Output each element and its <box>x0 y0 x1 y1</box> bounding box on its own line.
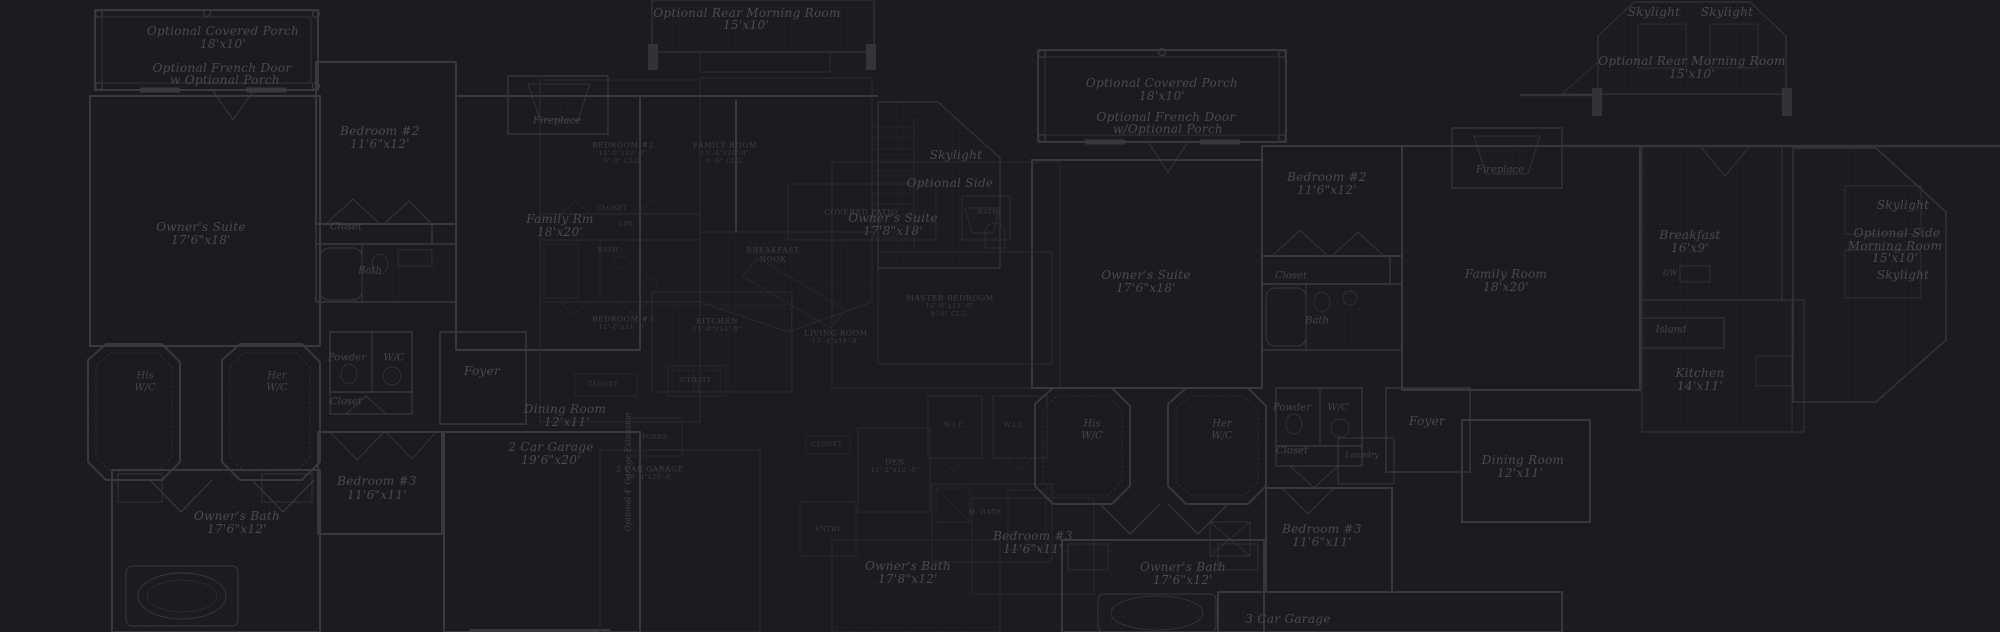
room-label: 12'x11' <box>544 415 590 429</box>
room-label: W/C <box>1081 431 1102 442</box>
label-bedroom-3: Bedroom #3 <box>337 474 417 488</box>
room-label: 15'x10' <box>723 18 769 32</box>
room-label: NOOK <box>760 255 787 264</box>
room-label: CLOSET <box>596 204 627 212</box>
room-label: 17'8"x18' <box>863 224 923 238</box>
room-label: Bath <box>1305 316 1329 327</box>
room-label: Optional Rear Morning Room <box>1598 54 1785 68</box>
room-label: 9'-0" CLG. <box>931 310 970 318</box>
room-label: Owner's Suite <box>848 211 938 225</box>
room-label: 15'x10' <box>1669 67 1715 81</box>
room-label: Her <box>1212 419 1231 430</box>
label-optional-covered-porch: Optional Covered Porch <box>147 24 299 38</box>
room-label: MASTER BEDROOM <box>906 294 994 303</box>
room-label: DW <box>1663 269 1678 278</box>
room-label: 9'-0" CLG. <box>604 157 643 165</box>
room-label: Closet <box>1275 271 1307 282</box>
room-label: KITCHEN <box>696 317 738 326</box>
room-label: Powder <box>1273 403 1311 414</box>
room-label: w/Optional Porch <box>1113 122 1223 136</box>
label-owners-suite: Owner's Suite <box>156 220 246 234</box>
room-label: 17'6"x12' <box>207 522 267 536</box>
room-label: BREAKFAST <box>746 246 799 255</box>
room-label: Powder <box>328 353 366 364</box>
room-label: 11'6"x12' <box>1297 183 1357 197</box>
room-label: Skylight <box>1628 5 1681 19</box>
room-label: 2 CAR GARAGE <box>616 465 683 474</box>
room-label: 11'6"x12' <box>350 137 410 151</box>
label-garage-extension: Optional 4' Garage Extension <box>624 412 633 531</box>
room-label: 19'6"x20' <box>521 453 581 467</box>
room-label: CLOSET <box>811 440 842 448</box>
room-label: w Optional Porch <box>170 73 280 87</box>
room-label: 16'-0"x13'-0" <box>926 302 975 310</box>
room-label: W/C <box>1211 431 1232 442</box>
room-label: His <box>136 371 153 382</box>
room-label: Foyer <box>1409 414 1445 428</box>
room-label: 11'-0"x11'-0" <box>599 323 648 331</box>
room-label: 17'8"x12' <box>878 572 938 586</box>
room-label: Closet <box>330 222 362 233</box>
room-label: Owner's Bath <box>865 559 951 573</box>
room-label: 17'6"x18' <box>171 233 231 247</box>
label-laundry: Laundry <box>1345 451 1379 460</box>
label-breakfast: Breakfast <box>1659 228 1720 242</box>
room-label: 11'-2"x12'-0" <box>871 466 920 474</box>
room-label: Optional Covered Porch <box>1086 76 1238 90</box>
room-label: 12'x11' <box>1497 466 1543 480</box>
room-label: 11'6"x11' <box>347 488 407 502</box>
room-label: Optional French Door <box>1097 110 1236 124</box>
room-label: 18'x20' <box>1483 280 1529 294</box>
room-label: LIVING ROOM <box>804 329 867 338</box>
room-label: Fireplace <box>1476 165 1524 176</box>
room-label: 11'-0"x12'-0" <box>599 149 648 157</box>
label-rear-morning-room: Optional Rear Morning Room <box>653 6 840 20</box>
room-label: 17'6"x18' <box>1116 281 1176 295</box>
room-label: His <box>1083 419 1100 430</box>
room-label: W/C <box>383 353 404 364</box>
label-family-rm: Family Rm <box>526 212 593 226</box>
label-skylight: Skylight <box>930 148 983 162</box>
room-label: Her <box>267 371 286 382</box>
room-label: FAMILY ROOM <box>693 141 758 150</box>
room-label: Bedroom #3 <box>993 529 1073 543</box>
room-label: Owner's Bath <box>1140 560 1226 574</box>
room-label: CLOSET <box>587 380 618 388</box>
room-label: BATH <box>977 208 998 216</box>
room-label: M. BATH <box>968 508 1001 516</box>
room-label: 9'-0" CLG. <box>706 157 745 165</box>
label-owners-bath: Owner's Bath <box>194 509 280 523</box>
room-label: W/C <box>266 383 287 394</box>
label-foyer: Foyer <box>464 364 500 378</box>
room-label: 11'6"x11' <box>1003 542 1063 556</box>
room-label: 15'x10' <box>1872 251 1918 265</box>
blueprint-collage: Optional Covered Porch18'x10'Optional Fr… <box>0 0 2000 632</box>
room-label: 11'-0"x14'-0" <box>693 325 742 333</box>
room-label: 14'x11' <box>1677 379 1723 393</box>
room-label: COVERED PATIO <box>824 208 897 217</box>
room-label: DEN <box>885 458 905 467</box>
label-optional-french-door: Optional French Door <box>153 61 292 75</box>
room-label: 17'6"x12' <box>1153 573 1213 587</box>
room-label: Skylight <box>1701 5 1754 19</box>
room-label: BEDROOM #3 <box>592 315 654 324</box>
room-label: Optional Side <box>907 176 994 190</box>
room-label: ENTRY <box>815 525 841 533</box>
room-label: BEDROOM #2 <box>592 141 654 150</box>
label-dining-room: Dining Room <box>1482 453 1564 467</box>
labels-layer: Optional Covered Porch18'x10'Optional Fr… <box>0 0 2000 632</box>
room-label: 18'x20' <box>537 225 583 239</box>
room-label: Bedroom #3 <box>1282 522 1362 536</box>
room-label: W.I.C. <box>1004 421 1026 429</box>
room-label: W/C <box>134 383 155 394</box>
room-label: W.I.C. <box>944 421 966 429</box>
room-label: 13'-4"x18'-0" <box>812 337 861 345</box>
room-label: W/C <box>1327 403 1348 414</box>
room-label: 11'6"x11' <box>1292 535 1352 549</box>
room-label: Skylight <box>1877 268 1930 282</box>
room-label: 15'-4"x20'-0" <box>701 149 750 157</box>
room-label: Bedroom #2 <box>1287 170 1367 184</box>
room-label: Closet <box>1276 446 1308 457</box>
room-label: Bath <box>358 266 382 277</box>
room-label: BATH <box>597 246 618 254</box>
room-label: 18'x10' <box>1139 89 1185 103</box>
room-label: Skylight <box>1877 198 1930 212</box>
room-label: 19'-4"x20'-0" <box>626 473 675 481</box>
label-2-car-garage: 2 Car Garage <box>508 440 593 454</box>
label-bedroom-2: Bedroom #2 <box>340 124 420 138</box>
room-label: Morning Room <box>1848 239 1943 253</box>
label-fireplace: Fireplace <box>533 116 581 127</box>
room-label: Owner's Suite <box>1101 268 1191 282</box>
room-label: Closet <box>330 397 362 408</box>
label-family-room: Family Room <box>1465 267 1547 281</box>
label-optional-side-morning-room: Optional Side <box>1854 226 1941 240</box>
label-island: Island <box>1655 325 1686 336</box>
room-label: Dining Room <box>524 402 606 416</box>
room-label: FOYER <box>642 433 668 441</box>
label-3-car-garage: 3 Car Garage <box>1245 612 1330 626</box>
room-label: 18'x10' <box>200 37 246 51</box>
room-label: 16'x9' <box>1671 241 1709 255</box>
room-label: LIN. <box>619 220 635 228</box>
label-kitchen: Kitchen <box>1675 366 1724 380</box>
room-label: UTILITY <box>680 376 711 384</box>
